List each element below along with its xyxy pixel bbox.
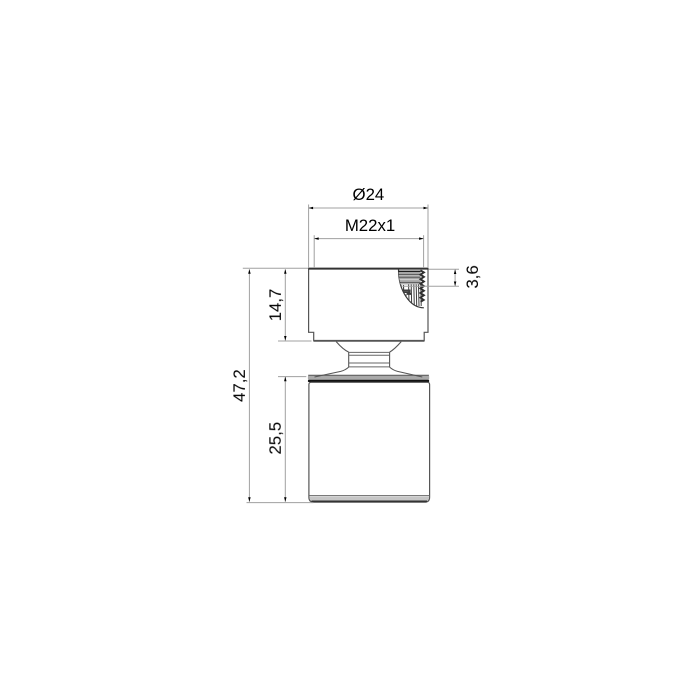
svg-text:3,6: 3,6 xyxy=(463,265,482,288)
svg-text:Ø24: Ø24 xyxy=(353,185,385,204)
svg-text:M22x1: M22x1 xyxy=(345,216,395,235)
svg-text:25,5: 25,5 xyxy=(266,422,285,455)
svg-text:14,7: 14,7 xyxy=(266,289,285,322)
svg-text:47,2: 47,2 xyxy=(230,369,249,402)
